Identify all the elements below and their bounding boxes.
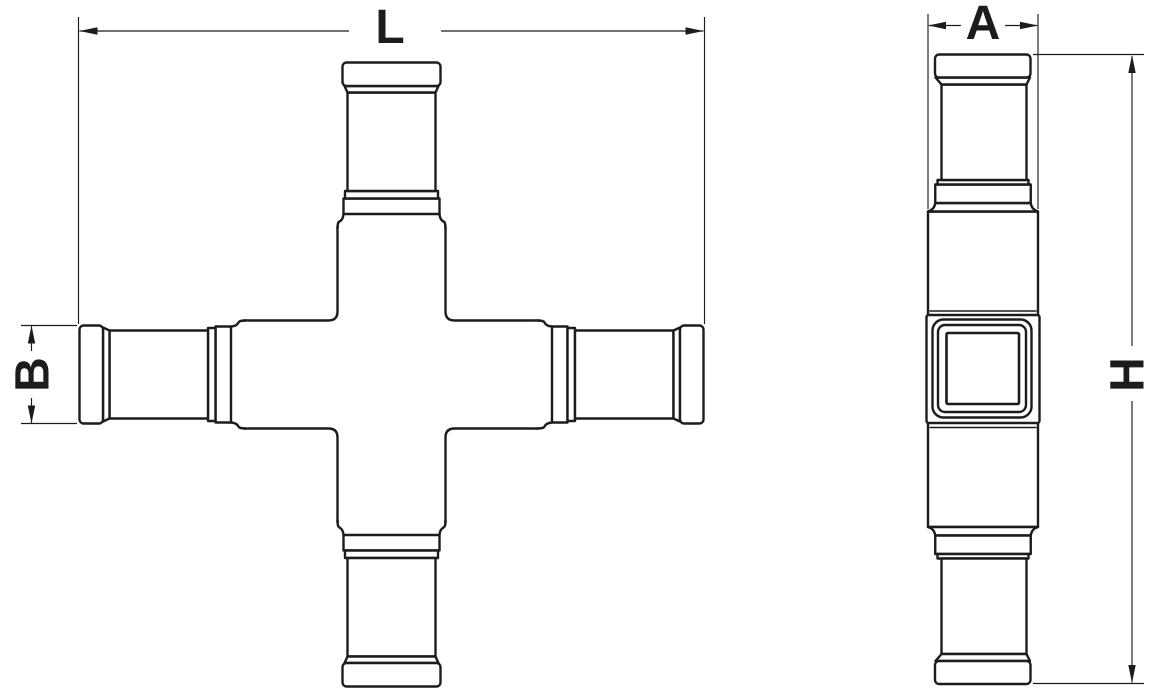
dimension-label-A: A <box>966 0 1001 50</box>
dimension-label-H: H <box>1102 357 1155 392</box>
dimension-overall-height: H <box>1033 55 1155 684</box>
arrowhead-right <box>686 27 704 34</box>
arrowhead-up <box>28 326 35 344</box>
side-view: A H <box>927 0 1155 684</box>
arm-left <box>80 321 249 429</box>
arrowhead-up <box>1128 55 1135 73</box>
side-outlet-collar <box>927 311 1040 428</box>
arm-bottom <box>338 518 446 687</box>
drawing-canvas: L B <box>0 0 1169 696</box>
cross-center-body <box>245 227 539 522</box>
dimension-label-L: L <box>375 1 404 54</box>
side-bottom-end <box>928 527 1038 684</box>
arrowhead-left <box>80 27 98 34</box>
dimension-label-B: B <box>7 357 60 392</box>
technical-drawing: L B <box>0 0 1169 696</box>
arm-right <box>535 321 704 429</box>
arrowhead-down <box>1128 665 1135 683</box>
dimension-end-diameter: B <box>7 326 78 424</box>
arrowhead-left <box>928 22 946 29</box>
front-view: L B <box>7 1 705 687</box>
side-top-end <box>928 55 1038 212</box>
arrowhead-down <box>28 406 35 424</box>
arm-top <box>338 63 446 232</box>
outlet-bore-square <box>947 333 1020 404</box>
arrowhead-right <box>1020 22 1038 29</box>
